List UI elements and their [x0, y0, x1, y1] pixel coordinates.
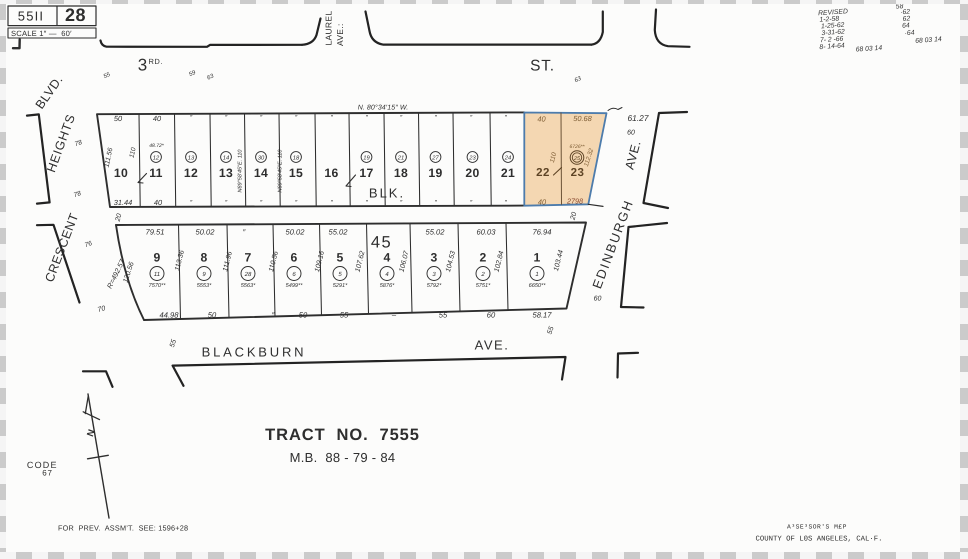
svg-text:2: 2 [480, 271, 485, 278]
svg-text:ST.: ST. [530, 58, 555, 75]
svg-text:60: 60 [627, 130, 635, 137]
svg-text:7570**: 7570** [149, 283, 167, 289]
svg-text:40: 40 [537, 114, 546, 123]
svg-text:110.56: 110.56 [268, 251, 280, 273]
svg-text:6650**: 6650** [529, 283, 547, 289]
svg-text:21: 21 [397, 154, 404, 161]
svg-text:61.27: 61.27 [628, 113, 649, 123]
svg-text:78: 78 [73, 190, 83, 199]
svg-text:″: ″ [260, 200, 263, 207]
svg-text:LAUREL: LAUREL [324, 11, 334, 46]
svg-text:N: N [85, 428, 98, 438]
svg-text:BLVD.: BLVD. [33, 73, 66, 112]
svg-text:M.B. 88 - 79 - 84: M.B. 88 - 79 - 84 [290, 450, 396, 465]
svg-text:″: ″ [295, 115, 298, 122]
svg-text:4: 4 [383, 251, 390, 265]
svg-text:104.53: 104.53 [445, 250, 457, 273]
svg-text:63: 63 [573, 75, 583, 84]
svg-text:5: 5 [336, 251, 343, 265]
svg-text:14: 14 [223, 155, 229, 161]
svg-text:40: 40 [153, 114, 162, 123]
svg-text:76.94: 76.94 [532, 228, 551, 237]
svg-text:3: 3 [430, 251, 437, 265]
svg-text:19: 19 [428, 166, 442, 180]
svg-text:5499**: 5499** [286, 283, 304, 289]
svg-text:18: 18 [293, 154, 300, 161]
svg-text:107.62: 107.62 [355, 250, 367, 273]
svg-text:9: 9 [202, 271, 206, 278]
svg-text:55: 55 [439, 311, 448, 320]
svg-text:78: 78 [74, 139, 84, 148]
svg-text:60: 60 [594, 296, 602, 303]
svg-text:23: 23 [571, 167, 585, 179]
svg-text:8- 14-64: 8- 14-64 [819, 42, 845, 51]
svg-text:5553*: 5553* [197, 283, 212, 289]
svg-text:50.02: 50.02 [195, 228, 215, 237]
svg-text:6: 6 [290, 251, 297, 265]
svg-text:30: 30 [258, 154, 265, 161]
svg-text:″: ″ [400, 115, 403, 122]
svg-text:1: 1 [535, 271, 538, 278]
svg-text:68 03 14: 68 03 14 [915, 36, 942, 45]
svg-text:″: ″ [330, 115, 333, 122]
svg-text:18: 18 [394, 166, 408, 180]
svg-text:1: 1 [533, 251, 540, 265]
svg-text:45: 45 [371, 234, 392, 252]
svg-text:21: 21 [501, 166, 515, 180]
svg-text:COUNTY OF L0S ANGELES, CAL·F.: COUNTY OF L0S ANGELES, CAL·F. [756, 536, 883, 544]
svg-text:55: 55 [102, 71, 112, 80]
svg-text:6726**: 6726** [569, 144, 585, 150]
svg-text:14: 14 [254, 166, 268, 180]
svg-text:20: 20 [114, 213, 123, 223]
svg-text:55II: 55II [18, 9, 44, 24]
svg-text:79.51: 79.51 [145, 228, 164, 237]
svg-text:10: 10 [114, 166, 128, 180]
svg-text:12: 12 [184, 166, 198, 180]
svg-text:50.02: 50.02 [285, 228, 305, 237]
svg-text:″: ″ [260, 115, 263, 122]
svg-text:·64: ·64 [904, 30, 915, 38]
svg-text:REVISED: REVISED [891, 0, 921, 5]
svg-text:5751*: 5751* [476, 283, 491, 289]
svg-text:11: 11 [149, 166, 162, 180]
svg-text:5563*: 5563* [241, 283, 256, 289]
svg-text:″: ″ [225, 115, 228, 122]
svg-text:7: 7 [244, 251, 251, 265]
svg-text:44.98: 44.98 [159, 311, 179, 320]
svg-text:55: 55 [169, 339, 178, 349]
svg-text:2798: 2798 [566, 197, 583, 206]
svg-text:55.02: 55.02 [328, 228, 348, 237]
svg-text:HEIGHTS: HEIGHTS [44, 112, 78, 174]
svg-text:″: ″ [190, 115, 193, 122]
svg-text:40: 40 [154, 198, 163, 207]
svg-text:110: 110 [129, 147, 138, 159]
svg-text:N89°58′45″E. 110: N89°58′45″E. 110 [278, 149, 284, 193]
svg-text:48.72*: 48.72* [149, 143, 165, 149]
svg-text:R=492.57: R=492.57 [105, 257, 127, 290]
svg-text:EDINBURGH: EDINBURGH [589, 197, 636, 291]
svg-text:5792*: 5792* [427, 283, 442, 289]
svg-text:9: 9 [153, 251, 160, 265]
svg-text:50: 50 [299, 311, 308, 320]
svg-text:24: 24 [504, 154, 511, 161]
svg-text:11: 11 [154, 271, 160, 278]
svg-text:67: 67 [42, 469, 53, 478]
svg-text:2: 2 [479, 251, 486, 265]
svg-text:70: 70 [97, 305, 106, 314]
svg-text:28: 28 [65, 5, 86, 25]
svg-text:13: 13 [219, 166, 233, 180]
svg-text:″: ″ [225, 200, 228, 207]
svg-text:106.07: 106.07 [399, 249, 411, 273]
svg-text:″: ″ [365, 115, 368, 122]
svg-text:58.17: 58.17 [532, 311, 552, 320]
svg-text:BLK.: BLK. [369, 186, 405, 201]
svg-text:50: 50 [114, 114, 123, 123]
svg-text:AVE.:: AVE.: [335, 23, 345, 46]
svg-text:60: 60 [487, 311, 496, 320]
svg-text:BLACKBURN: BLACKBURN [202, 345, 307, 360]
svg-text:55: 55 [340, 311, 349, 320]
svg-text:″: ″ [272, 311, 275, 320]
svg-text:20: 20 [465, 166, 479, 180]
svg-text:CRESCENT: CRESCENT [42, 211, 81, 284]
svg-text:17: 17 [359, 166, 373, 180]
svg-text:A³SE³SOR′S M£P: A³SE³SOR′S M£P [787, 524, 847, 531]
svg-text:31.44: 31.44 [114, 198, 133, 207]
svg-text:FOR PREV. ASSM’T. SEE: 1596: FOR PREV. ASSM’T. SEE: 1596+28 [58, 524, 188, 533]
svg-text:″: ″ [470, 115, 473, 122]
svg-text:5: 5 [338, 271, 342, 278]
svg-text:AVE.: AVE. [475, 338, 510, 353]
svg-text:RD.: RD. [149, 57, 163, 66]
svg-text:3: 3 [432, 271, 436, 278]
svg-text:22: 22 [536, 167, 550, 179]
svg-text:113.36: 113.36 [174, 250, 186, 272]
svg-text:3: 3 [138, 56, 147, 75]
svg-text:28: 28 [244, 271, 252, 278]
svg-text:–: – [391, 311, 397, 320]
svg-text:63: 63 [206, 72, 216, 81]
svg-text:16: 16 [324, 166, 338, 180]
svg-text:5291*: 5291* [333, 283, 348, 289]
svg-text:102.84: 102.84 [494, 250, 506, 273]
svg-text:4: 4 [385, 271, 389, 278]
svg-text:19: 19 [363, 154, 370, 161]
svg-text:″: ″ [434, 115, 437, 122]
svg-text:25: 25 [573, 156, 581, 162]
svg-text:N. 80°34′15″ W.: N. 80°34′15″ W. [358, 105, 409, 112]
svg-text:6: 6 [292, 271, 296, 278]
svg-text:55.02: 55.02 [425, 228, 445, 237]
svg-text:64: 64 [902, 22, 910, 30]
svg-text:″: ″ [190, 200, 193, 207]
svg-text:TRACT NO. 7555: TRACT NO. 7555 [265, 426, 420, 444]
svg-text:″: ″ [504, 115, 507, 122]
svg-text:20: 20 [569, 211, 578, 221]
svg-text:103.44: 103.44 [553, 249, 565, 272]
svg-text:50: 50 [208, 311, 217, 320]
svg-text:27: 27 [431, 154, 439, 161]
svg-text:59: 59 [188, 69, 198, 78]
svg-text:60.03: 60.03 [476, 228, 496, 237]
svg-text:AVE.: AVE. [623, 139, 644, 171]
svg-text:″: ″ [243, 228, 246, 237]
svg-text:8: 8 [200, 251, 207, 265]
svg-text:23: 23 [468, 154, 476, 161]
svg-text:111.56: 111.56 [104, 147, 115, 168]
svg-text:55: 55 [547, 326, 556, 336]
svg-text:N89°58′45″E. 110: N89°58′45″E. 110 [238, 149, 244, 193]
svg-text:68 03 14: 68 03 14 [855, 45, 882, 54]
svg-text:SCALE 1″ — 60′: SCALE 1″ — 60′ [11, 29, 72, 38]
svg-text:109.16: 109.16 [314, 250, 326, 273]
svg-text:40: 40 [538, 198, 547, 207]
svg-text:13: 13 [188, 154, 195, 161]
svg-text:50.68: 50.68 [573, 114, 592, 123]
svg-text:5876*: 5876* [380, 283, 395, 289]
svg-text:12: 12 [153, 154, 160, 161]
svg-text:76: 76 [84, 240, 94, 249]
svg-text:15: 15 [289, 166, 303, 180]
svg-text:111.96: 111.96 [222, 251, 234, 273]
